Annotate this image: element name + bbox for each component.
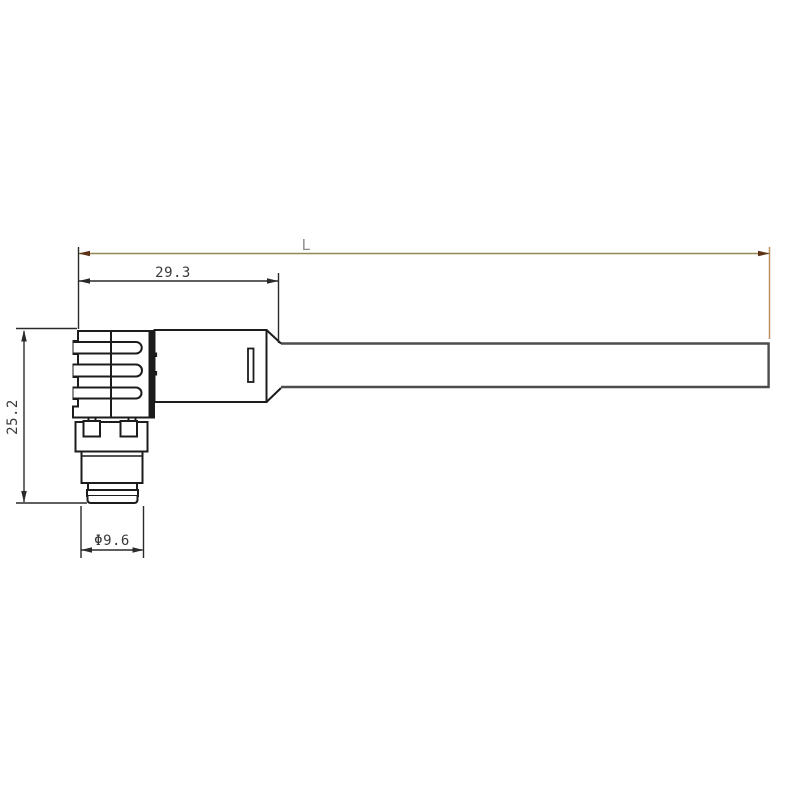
- technical-drawing-page: L 29.3 25.2 Φ9.6: [0, 0, 800, 800]
- dim-label-connector-length: 29.3: [155, 265, 191, 281]
- nut-notch: [84, 421, 101, 437]
- dim-label-connector-diameter: Φ9.6: [94, 533, 130, 549]
- crimp-bar: [149, 330, 155, 418]
- dim-label-connector-height: 25.2: [5, 399, 21, 435]
- plug-tip: [88, 496, 138, 503]
- bend-relief-slot: [74, 365, 143, 377]
- right-angle-connector-drawing: L 29.3 25.2 Φ9.6: [0, 0, 800, 800]
- crimp-tick: [155, 371, 158, 376]
- bend-relief-slot: [74, 342, 142, 354]
- dim-label-overall-length: L: [301, 236, 310, 254]
- nut-notch: [121, 421, 138, 437]
- plug-ring: [88, 483, 137, 490]
- crimp-tick: [155, 353, 158, 358]
- bend-relief-slot: [74, 388, 142, 399]
- cable: [281, 344, 769, 388]
- plug-ring: [87, 490, 138, 496]
- body-slot-mark: [248, 349, 254, 383]
